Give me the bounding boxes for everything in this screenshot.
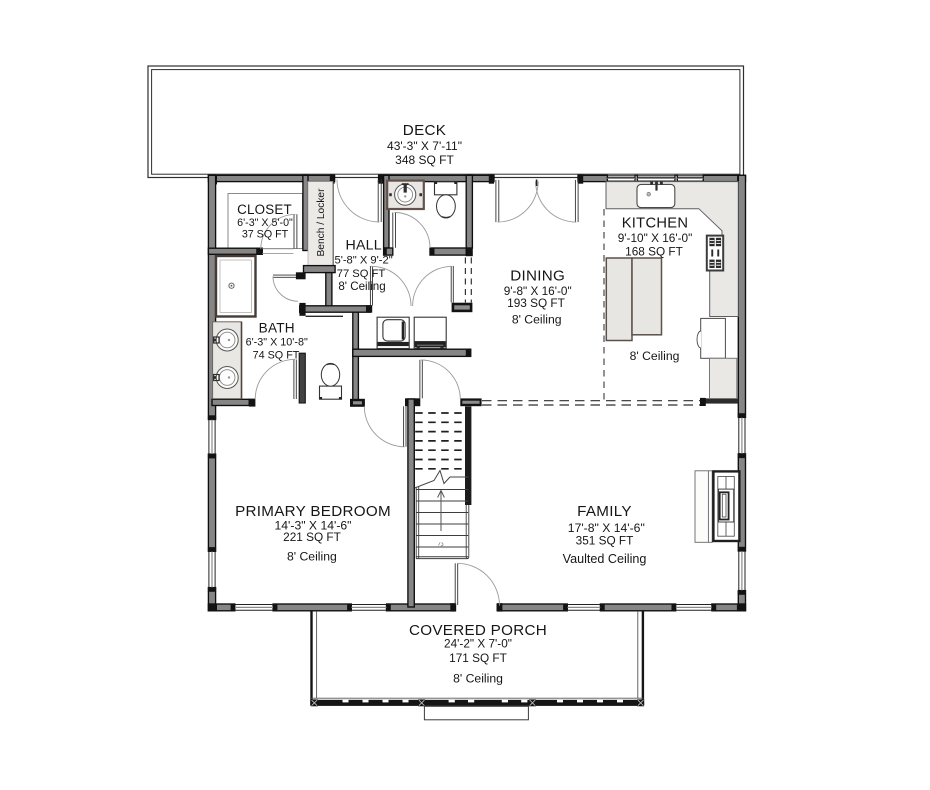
svg-text:DINING: DINING (510, 267, 565, 284)
svg-text:Vaulted Ceiling: Vaulted Ceiling (563, 552, 647, 566)
svg-text:8' Ceiling: 8' Ceiling (453, 672, 503, 686)
svg-text:171 SQ FT: 171 SQ FT (449, 651, 507, 665)
svg-text:8' Ceiling: 8' Ceiling (338, 280, 385, 293)
svg-text:FAMILY: FAMILY (577, 503, 632, 520)
svg-text:74 SQ FT: 74 SQ FT (253, 349, 300, 361)
svg-text:6'-3" X 10'-8": 6'-3" X 10'-8" (246, 337, 308, 349)
svg-text:37 SQ FT: 37 SQ FT (242, 229, 289, 241)
svg-text:HALL: HALL (346, 238, 382, 254)
svg-text:193 SQ FT: 193 SQ FT (507, 296, 565, 310)
svg-text:348 SQ FT: 348 SQ FT (395, 153, 454, 167)
svg-text:5'-8" X 9'-2": 5'-8" X 9'-2" (334, 254, 392, 266)
svg-text:43'-3" X 7'-11": 43'-3" X 7'-11" (387, 139, 462, 153)
svg-text:351 SQ FT: 351 SQ FT (576, 533, 634, 547)
svg-text:221 SQ FT: 221 SQ FT (283, 530, 341, 544)
svg-text:77 SQ FT: 77 SQ FT (337, 268, 386, 280)
svg-text:24'-2" X 7'-0": 24'-2" X 7'-0" (444, 637, 512, 651)
svg-text:9'-10" X 16'-0": 9'-10" X 16'-0" (618, 231, 693, 245)
svg-text:DECK: DECK (403, 122, 446, 139)
svg-text:168 SQ FT: 168 SQ FT (625, 245, 683, 259)
svg-text:8' Ceiling: 8' Ceiling (512, 313, 562, 327)
svg-text:6'-3" X 5'-0": 6'-3" X 5'-0" (237, 217, 293, 229)
svg-text:8' Ceiling: 8' Ceiling (287, 549, 337, 563)
svg-text:KITCHEN: KITCHEN (622, 216, 689, 232)
svg-text:8' Ceiling: 8' Ceiling (630, 349, 680, 363)
svg-text:Bench / Locker: Bench / Locker (316, 188, 327, 257)
svg-text:BATH: BATH (259, 321, 295, 336)
svg-text:CLOSET: CLOSET (237, 202, 292, 217)
